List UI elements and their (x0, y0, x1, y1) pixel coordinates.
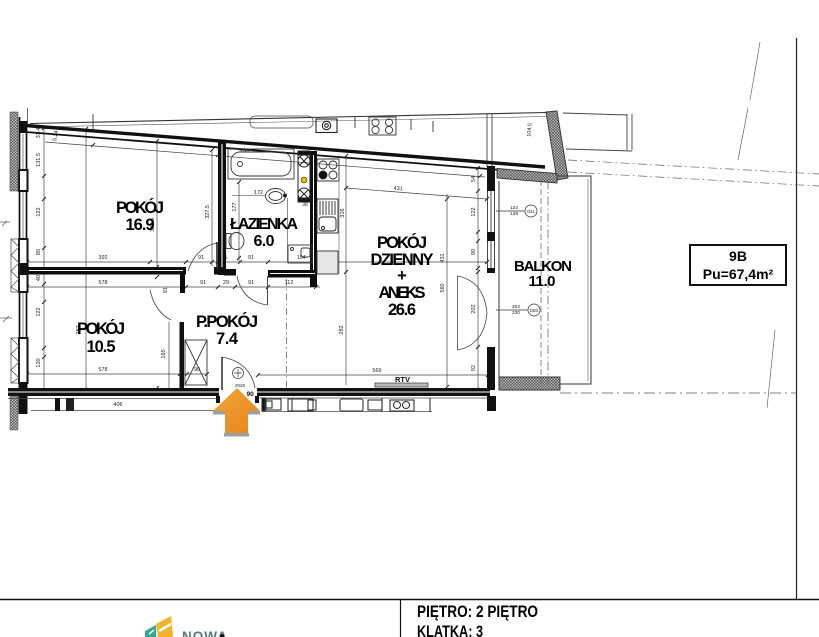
svg-text:569: 569 (372, 368, 381, 374)
svg-text:29: 29 (223, 280, 229, 286)
svg-text:90: 90 (471, 249, 477, 255)
svg-text:10.5: 10.5 (87, 338, 116, 356)
svg-text:578: 578 (98, 280, 107, 286)
svg-text:202: 202 (471, 304, 477, 313)
svg-text:11.0: 11.0 (529, 273, 556, 290)
svg-text:P.POKÓJ: P.POKÓJ (196, 312, 258, 331)
svg-text:165: 165 (161, 349, 167, 358)
svg-text:+: + (397, 267, 407, 285)
svg-text:122: 122 (36, 307, 42, 316)
svg-text:2025: 2025 (235, 383, 246, 388)
svg-text:91: 91 (248, 280, 254, 286)
svg-text:POKÓJ: POKÓJ (377, 233, 427, 252)
svg-text:148: 148 (510, 211, 518, 217)
svg-text:POKÓJ: POKÓJ (77, 319, 125, 338)
svg-text:85: 85 (36, 249, 42, 255)
svg-text:177: 177 (232, 202, 238, 211)
svg-text:26.6: 26.6 (388, 301, 416, 319)
svg-text:172: 172 (254, 190, 263, 196)
svg-text:7.4: 7.4 (216, 330, 239, 348)
svg-text:38: 38 (302, 202, 308, 208)
svg-text:Pu=67,4m²: Pu=67,4m² (703, 266, 774, 282)
svg-text:9B: 9B (729, 248, 747, 264)
svg-text:54: 54 (471, 176, 477, 182)
svg-text:6.0: 6.0 (254, 233, 275, 250)
svg-text:ANEKS: ANEKS (379, 284, 426, 302)
svg-text:104.5: 104.5 (526, 123, 533, 137)
svg-text:90: 90 (247, 391, 255, 398)
svg-text:104: 104 (297, 255, 306, 261)
svg-text:122: 122 (471, 207, 477, 216)
svg-text:120: 120 (36, 358, 42, 367)
svg-text:DB3: DB3 (530, 308, 539, 313)
svg-text:202: 202 (512, 304, 520, 310)
svg-text:560: 560 (440, 283, 446, 292)
svg-text:90: 90 (194, 367, 200, 373)
svg-text:431: 431 (393, 186, 403, 193)
svg-text:122: 122 (36, 207, 42, 216)
svg-text:91: 91 (163, 287, 169, 293)
svg-text:ŁAZIENKA: ŁAZIENKA (230, 216, 298, 233)
svg-text:91: 91 (200, 280, 206, 286)
svg-text:POKÓJ: POKÓJ (116, 198, 164, 217)
svg-text:112: 112 (285, 280, 294, 286)
svg-text:16.9: 16.9 (126, 216, 155, 234)
svg-text:431: 431 (440, 253, 446, 262)
svg-text:RTV: RTV (395, 375, 410, 384)
svg-text:131.5: 131.5 (36, 153, 42, 167)
svg-text:PIĘTRO: 2 PIĘTRO: PIĘTRO: 2 PIĘTRO (417, 602, 538, 621)
svg-text:230: 230 (512, 310, 520, 316)
svg-text:KLATKA: 3: KLATKA: 3 (417, 622, 483, 637)
svg-text:578: 578 (98, 367, 107, 373)
svg-text:40: 40 (36, 275, 42, 281)
svg-text:91: 91 (248, 255, 254, 261)
svg-text:282: 282 (339, 325, 345, 334)
svg-text:316: 316 (340, 208, 346, 217)
svg-text:O4L: O4L (527, 209, 536, 214)
svg-text:406: 406 (113, 402, 122, 408)
svg-text:91: 91 (198, 255, 204, 261)
svg-text:327.5: 327.5 (205, 205, 211, 219)
svg-text:122: 122 (510, 205, 518, 211)
svg-text:92: 92 (471, 365, 477, 371)
svg-text:392: 392 (98, 255, 107, 261)
